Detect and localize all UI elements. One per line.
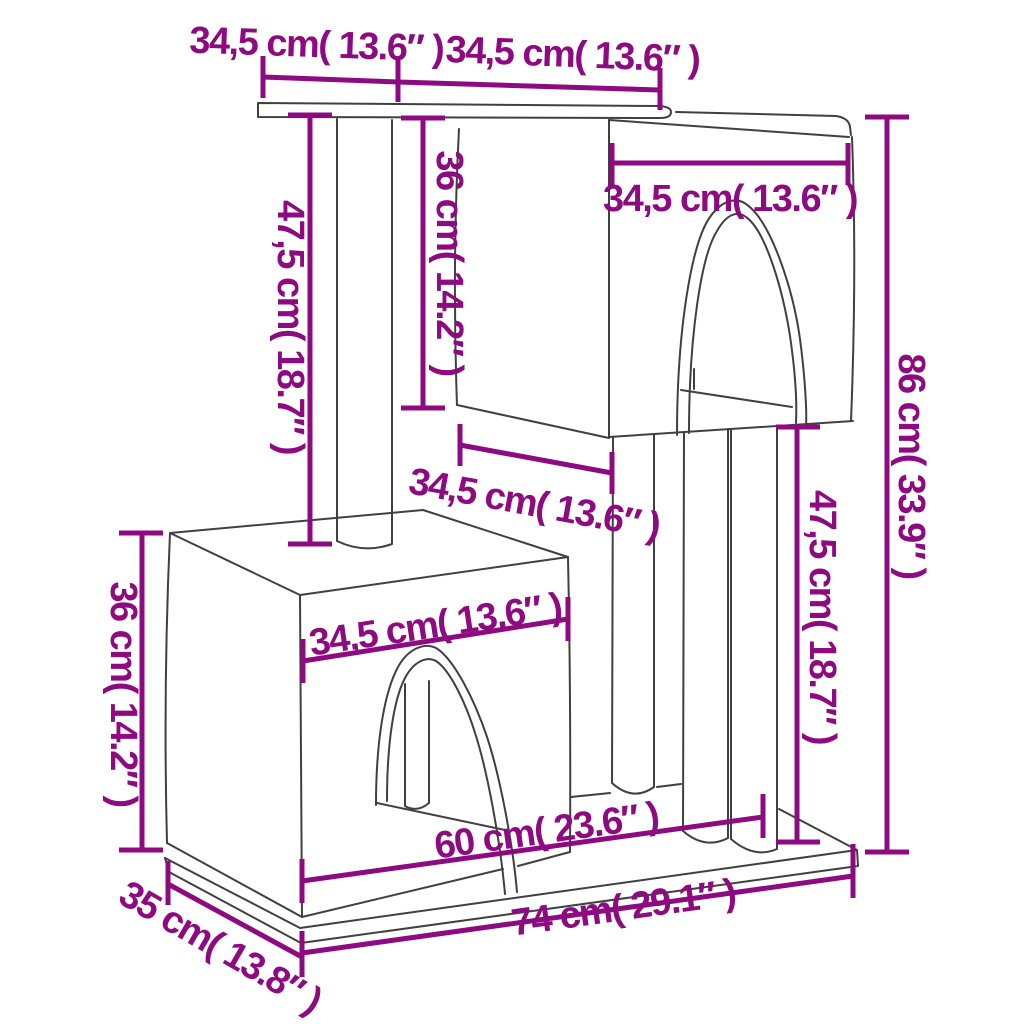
upper-condo-floor-edge <box>681 390 792 407</box>
dimension-label: 34,5 cm( 13.6″ ) <box>189 20 444 71</box>
dimension-label: 34,5 cm( 13.6″ ) <box>603 178 857 220</box>
dimension-label: 47,5 cm( 18.7″ ) <box>269 200 311 454</box>
dimension-base-depth: 35 cm( 13.8″ ) <box>112 861 328 1022</box>
dimension-upper-condo-height: 36 cm( 14.2″ ) <box>401 118 470 408</box>
lower-condo-left-edge <box>166 533 170 843</box>
right-scratching-post <box>731 426 777 852</box>
dimension-left-post-height: 47,5 cm( 18.7″ ) <box>269 115 332 544</box>
dimension-label: 34,5 cm( 13.6″ ) <box>307 586 564 665</box>
dimension-upper-condo-width: 34,5 cm( 13.6″ ) <box>603 143 857 220</box>
dimension-label: 34,5 cm( 13.6″ ) <box>405 460 662 548</box>
upper-condo-side-bottom-edge <box>457 405 609 438</box>
dimension-label: 36 cm( 14.2″ ) <box>428 150 470 375</box>
dimension-right-post-height: 47,5 cm( 18.7″ ) <box>776 427 843 842</box>
dimension-label: 86 cm( 33.9″ ) <box>890 353 932 578</box>
dimension-upper-condo-depth: 34,5 cm( 13.6″ ) <box>405 424 662 548</box>
dimension-platform-width: 34,5 cm( 13.6″ ) <box>189 20 444 102</box>
dimension-total-height: 86 cm( 33.9″ ) <box>865 117 932 852</box>
dimension-line <box>398 82 660 90</box>
left-scratching-post <box>337 119 392 548</box>
lower-condo-top-face <box>170 510 568 595</box>
middle-scratching-post <box>612 434 654 794</box>
front-scratching-post <box>683 429 728 843</box>
dimension-label: 34,5 cm( 13.6″ ) <box>445 29 701 81</box>
dimension-label: 36 cm( 14.2″ ) <box>102 581 144 806</box>
interior-scratching-post <box>405 681 429 809</box>
base-back-edge-segments <box>571 784 681 797</box>
dimension-line <box>263 77 398 82</box>
dimension-label: 47,5 cm( 18.7″ ) <box>801 490 843 744</box>
dimension-diagram: 34,5 cm( 13.6″ )34,5 cm( 13.6″ )47,5 cm(… <box>0 0 1024 1024</box>
cat-tree-dimension-drawing: 34,5 cm( 13.6″ )34,5 cm( 13.6″ )47,5 cm(… <box>0 0 1024 1024</box>
upper-condo-roof-front-edge <box>609 120 849 137</box>
dimension-base-width: 74 cm( 29.1″ ) <box>302 844 853 977</box>
dimension-label: 60 cm( 23.6″ ) <box>432 795 661 868</box>
dimension-lower-condo-width: 34,5 cm( 13.6″ ) <box>303 586 568 683</box>
dimension-line <box>460 445 612 473</box>
dimension-annotations: 34,5 cm( 13.6″ )34,5 cm( 13.6″ )47,5 cm(… <box>102 20 932 1023</box>
dimension-lower-condo-height: 36 cm( 14.2″ ) <box>102 533 163 850</box>
dimension-label: 35 cm( 13.8″ ) <box>112 873 328 1022</box>
